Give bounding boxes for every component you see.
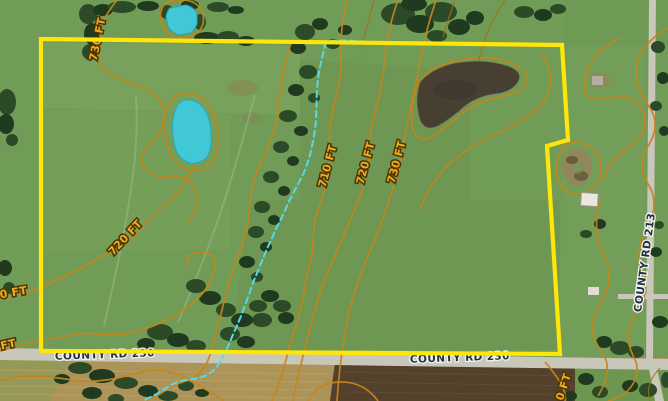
building-house bbox=[581, 192, 599, 206]
aerial-map-canvas: 730 FT 710 FT 720 FT 730 FT 720 FT 0 FT … bbox=[0, 0, 668, 401]
map-viewport[interactable]: 730 FT 710 FT 720 FT 730 FT 720 FT 0 FT … bbox=[0, 0, 668, 401]
building-small bbox=[588, 287, 599, 295]
building-shed bbox=[592, 76, 603, 85]
pond-small bbox=[166, 5, 197, 35]
